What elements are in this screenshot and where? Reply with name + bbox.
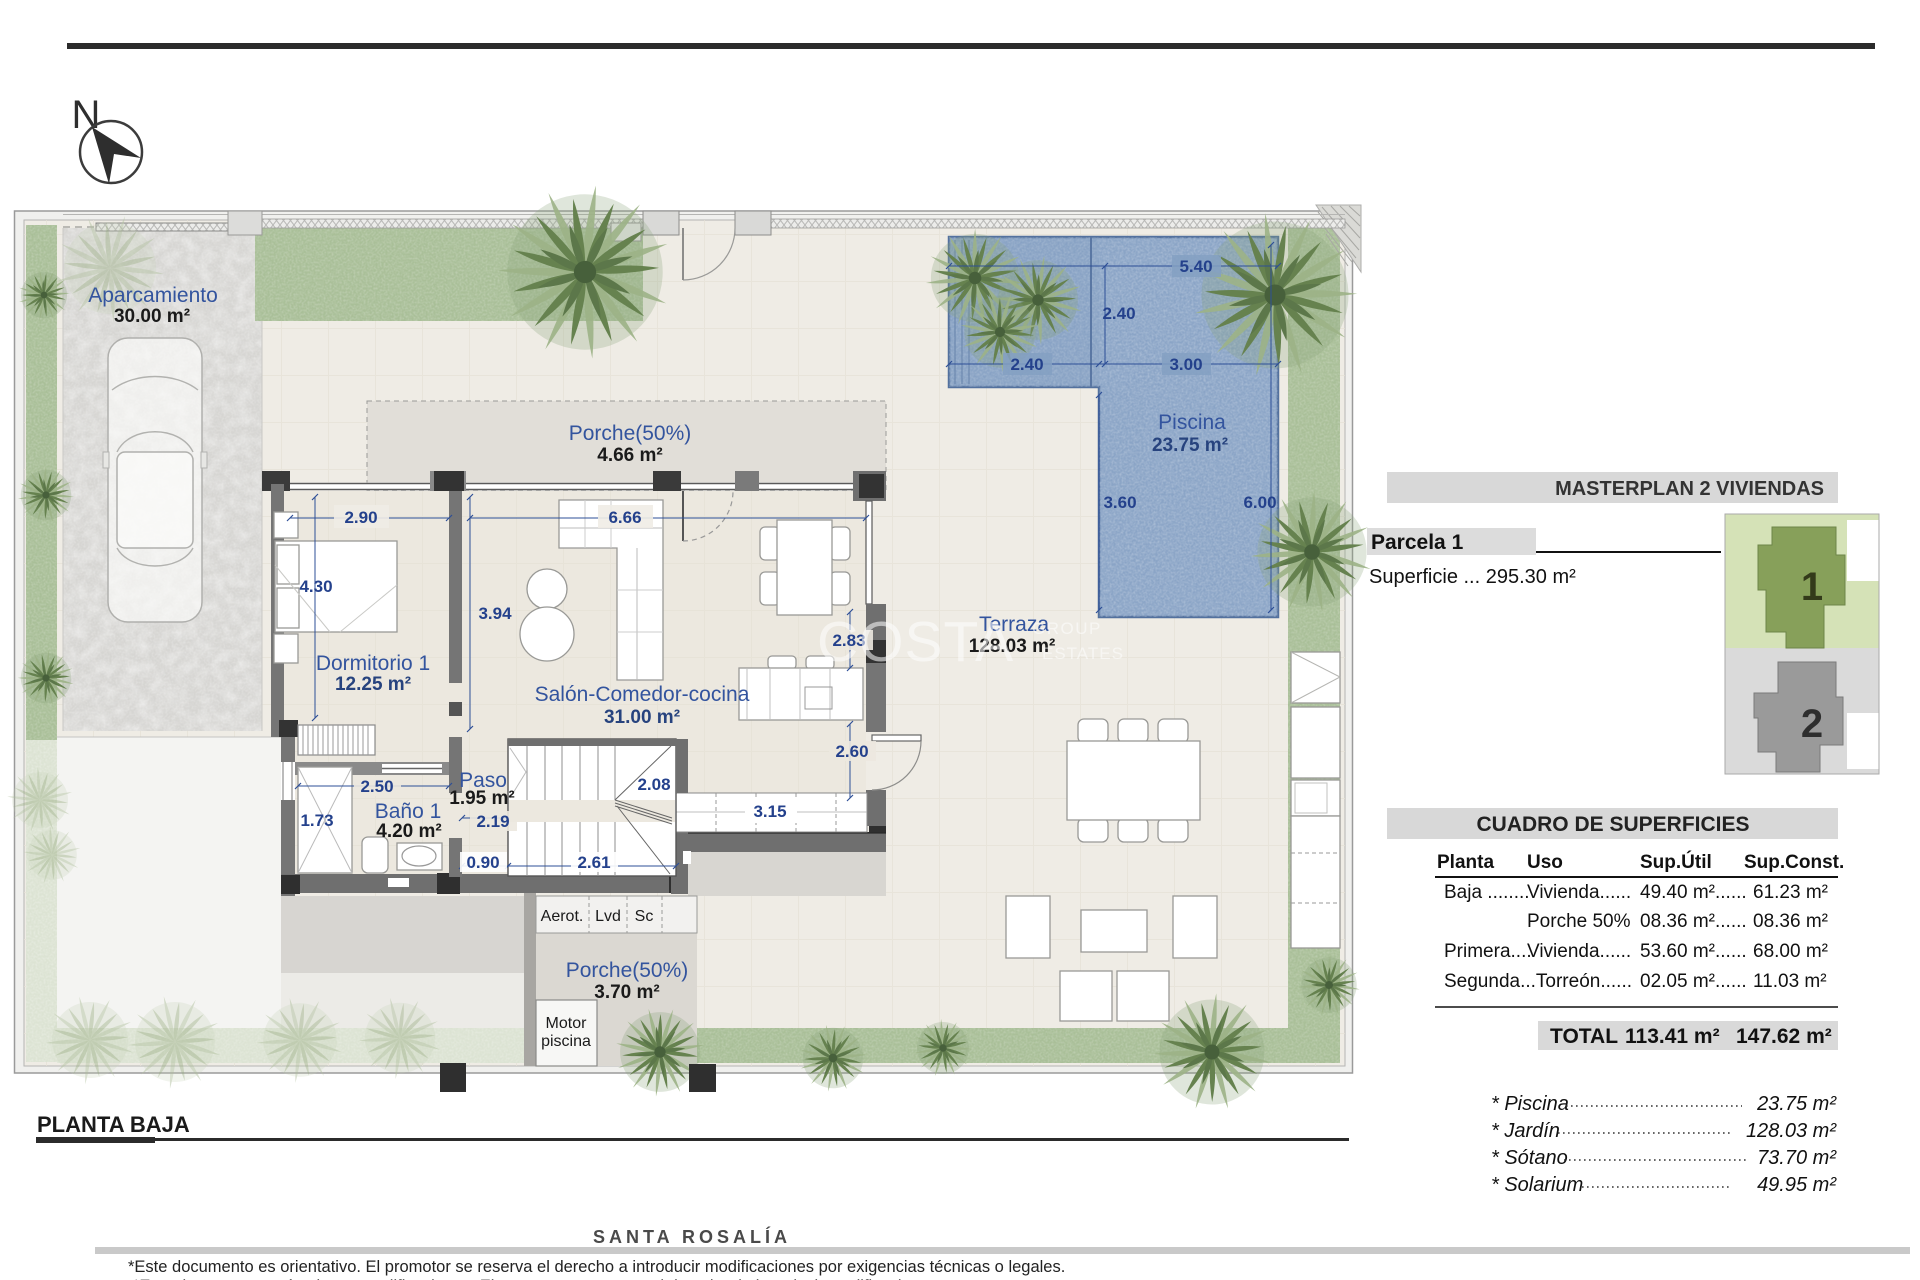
svg-text:PLANTA BAJA: PLANTA BAJA	[37, 1112, 190, 1137]
svg-text:2.19: 2.19	[476, 812, 509, 831]
svg-text:3.15: 3.15	[753, 802, 786, 821]
svg-text:SANTA ROSALÍA: SANTA ROSALÍA	[593, 1226, 791, 1247]
svg-text:08.36 m²: 08.36 m²	[1753, 911, 1828, 932]
svg-text:CUADRO DE SUPERFICIES: CUADRO DE SUPERFICIES	[1476, 813, 1749, 836]
svg-text:*Este documento es orientativo: *Este documento es orientativo. El promo…	[128, 1258, 1065, 1276]
svg-text:4.30: 4.30	[299, 577, 332, 596]
svg-text:2.60: 2.60	[835, 742, 868, 761]
svg-text:Segunda...Torreón......: Segunda...Torreón......	[1444, 971, 1632, 992]
svg-text:Piscina: Piscina	[1158, 411, 1226, 434]
svg-text:ESTATES: ESTATES	[1042, 644, 1124, 663]
svg-text:11.03 m²: 11.03 m²	[1753, 971, 1827, 992]
svg-text:Porche(50%): Porche(50%)	[566, 959, 689, 982]
svg-text:Superficie ... 295.30 m²: Superficie ... 295.30 m²	[1369, 566, 1576, 588]
svg-text:2.50: 2.50	[360, 777, 393, 796]
svg-text:49.40 m²......: 49.40 m²......	[1640, 882, 1747, 903]
svg-text:* Sótano: * Sótano	[1491, 1147, 1568, 1169]
svg-text:MASTERPLAN 2 VIVIENDAS: MASTERPLAN 2 VIVIENDAS	[1555, 478, 1824, 500]
svg-text:5.40: 5.40	[1179, 257, 1212, 276]
svg-text:23.75 m²: 23.75 m²	[1152, 435, 1228, 456]
svg-text:53.60 m²......: 53.60 m²......	[1640, 941, 1747, 962]
svg-text:30.00 m²: 30.00 m²	[114, 306, 190, 327]
svg-text:1: 1	[1801, 565, 1823, 609]
svg-text:Baja ........: Baja ........	[1444, 882, 1530, 903]
svg-text:Vivienda......: Vivienda......	[1527, 941, 1631, 962]
svg-text:2.40: 2.40	[1102, 304, 1135, 323]
svg-text:49.95 m²: 49.95 m²	[1757, 1174, 1837, 1196]
svg-text:2.90: 2.90	[344, 508, 377, 527]
svg-text:Porche 50%: Porche 50%	[1527, 911, 1631, 932]
svg-text:3.94: 3.94	[478, 604, 512, 623]
svg-text:TOTAL: TOTAL	[1550, 1025, 1618, 1048]
svg-text:* Jardín: * Jardín	[1491, 1120, 1560, 1142]
svg-text:31.00 m²: 31.00 m²	[604, 707, 680, 728]
svg-text:Motor: Motor	[546, 1015, 588, 1032]
svg-text:Aparcamiento: Aparcamiento	[88, 284, 218, 307]
svg-text:23.75 m²: 23.75 m²	[1756, 1093, 1837, 1115]
svg-text:GROUP: GROUP	[1032, 619, 1102, 638]
svg-text:Baño 1: Baño 1	[375, 800, 442, 823]
svg-text:113.41 m²: 113.41 m²	[1625, 1025, 1720, 1048]
svg-text:73.70 m²: 73.70 m²	[1757, 1147, 1837, 1169]
svg-text:08.36 m²......: 08.36 m²......	[1640, 911, 1747, 932]
svg-text:Porche(50%): Porche(50%)	[569, 422, 692, 445]
svg-text:128.03 m²: 128.03 m²	[1746, 1120, 1837, 1142]
svg-text:61.23 m²: 61.23 m²	[1753, 882, 1828, 903]
svg-text:2: 2	[1801, 702, 1823, 746]
svg-text:Dormitorio 1: Dormitorio 1	[316, 652, 430, 675]
svg-text:Planta: Planta	[1437, 852, 1494, 873]
svg-text:Parcela 1: Parcela 1	[1371, 531, 1464, 554]
svg-text:6.66: 6.66	[608, 508, 641, 527]
svg-text:68.00 m²: 68.00 m²	[1753, 941, 1828, 962]
svg-text:Vivienda......: Vivienda......	[1527, 882, 1631, 903]
svg-text:Aerot.: Aerot.	[541, 908, 584, 925]
svg-text:0.90: 0.90	[466, 853, 499, 872]
svg-text:12.25 m²: 12.25 m²	[335, 674, 411, 695]
svg-text:3.70 m²: 3.70 m²	[594, 982, 659, 1003]
svg-text:Lvd: Lvd	[595, 908, 621, 925]
svg-text:piscina: piscina	[541, 1033, 591, 1050]
svg-text:4.20 m²: 4.20 m²	[376, 821, 441, 842]
svg-text:Uso: Uso	[1527, 852, 1563, 873]
svg-text:Primera....: Primera....	[1444, 941, 1532, 962]
svg-text:* Solarium: * Solarium	[1491, 1174, 1583, 1196]
svg-text:Sup.Const.: Sup.Const.	[1744, 852, 1844, 873]
svg-text:3.60: 3.60	[1103, 493, 1136, 512]
svg-text:Salón-Comedor-cocina: Salón-Comedor-cocina	[535, 683, 750, 706]
svg-text:1.95 m²: 1.95 m²	[449, 788, 514, 809]
svg-text:3.00: 3.00	[1169, 355, 1202, 374]
svg-text:6.00: 6.00	[1243, 493, 1276, 512]
svg-text:* Piscina: * Piscina	[1491, 1093, 1569, 1115]
svg-text:2.61: 2.61	[577, 853, 610, 872]
svg-text:4.66 m²: 4.66 m²	[597, 445, 662, 466]
svg-text:1.73: 1.73	[300, 811, 333, 830]
svg-text:2.08: 2.08	[637, 775, 670, 794]
svg-text:COSTA: COSTA	[817, 610, 1014, 674]
svg-text:2.40: 2.40	[1010, 355, 1043, 374]
svg-text:147.62 m²: 147.62 m²	[1736, 1025, 1832, 1048]
svg-text:Sup.Útil: Sup.Útil	[1640, 851, 1712, 873]
svg-text:02.05 m²......: 02.05 m²......	[1640, 971, 1747, 992]
svg-text:Sc: Sc	[635, 908, 654, 925]
